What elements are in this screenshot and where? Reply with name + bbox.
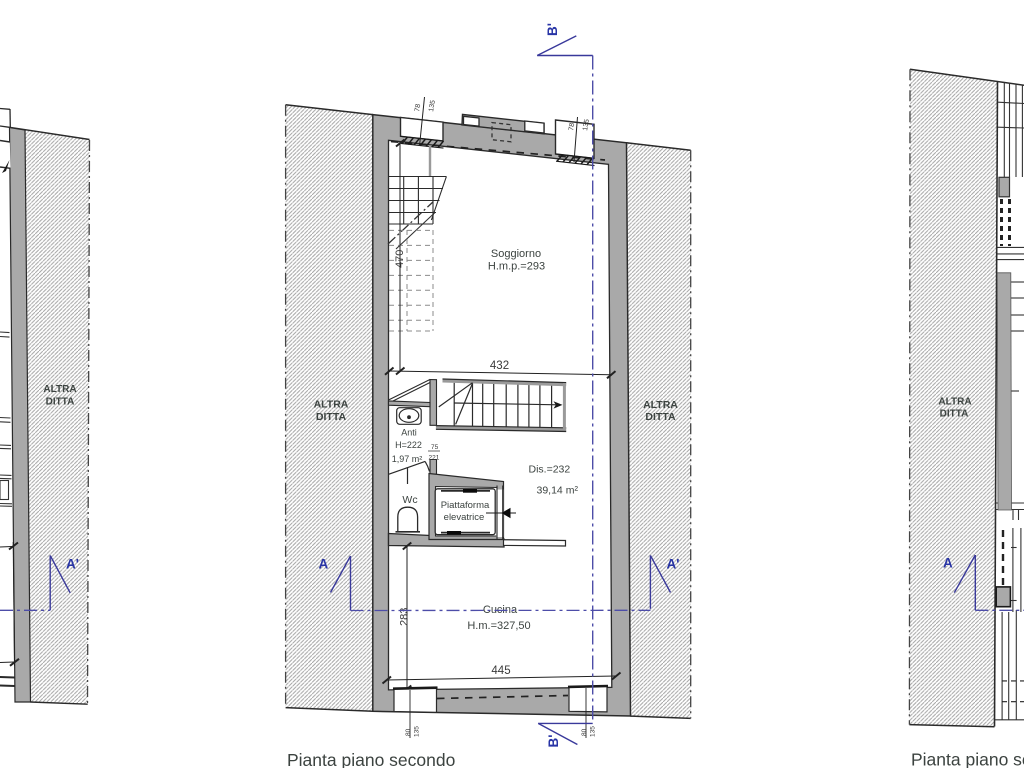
- svg-text:elevatrice: elevatrice: [444, 512, 485, 523]
- svg-text:DITTA: DITTA: [645, 411, 676, 423]
- svg-text:135: 135: [413, 726, 420, 737]
- svg-text:Dis.=232: Dis.=232: [529, 464, 571, 476]
- svg-text:39,14 m²: 39,14 m²: [537, 485, 579, 497]
- svg-text:H.m.p.=293: H.m.p.=293: [488, 261, 545, 273]
- svg-text:DITTA: DITTA: [316, 411, 347, 423]
- svg-text:Wc: Wc: [402, 494, 417, 506]
- svg-text:80: 80: [405, 728, 412, 736]
- svg-text:A': A': [667, 557, 680, 572]
- svg-text:A': A': [66, 557, 79, 572]
- svg-text:Anti: Anti: [401, 428, 417, 438]
- svg-text:A: A: [319, 557, 329, 572]
- svg-text:470: 470: [394, 250, 406, 268]
- svg-text:DITTA: DITTA: [46, 397, 75, 408]
- svg-text:ALTRA: ALTRA: [643, 399, 678, 411]
- svg-text:ALTRA: ALTRA: [938, 397, 971, 408]
- svg-text:221: 221: [429, 455, 440, 462]
- svg-text:Soggiorno: Soggiorno: [491, 248, 541, 260]
- svg-text:432: 432: [490, 360, 509, 372]
- svg-text:Pianta piano se: Pianta piano se: [911, 750, 1024, 768]
- svg-text:80: 80: [581, 728, 588, 736]
- svg-text:ALTRA: ALTRA: [43, 384, 76, 395]
- svg-text:75: 75: [431, 444, 439, 451]
- svg-text:ALTRA: ALTRA: [314, 399, 349, 411]
- svg-text:A: A: [943, 556, 953, 571]
- svg-text:135: 135: [589, 726, 596, 737]
- svg-text:Pianta piano secondo: Pianta piano secondo: [287, 750, 455, 768]
- svg-text:Piattaforma: Piattaforma: [441, 500, 490, 511]
- svg-text:H.m.=327,50: H.m.=327,50: [467, 620, 530, 632]
- svg-text:B': B': [545, 23, 560, 36]
- svg-text:H=222: H=222: [395, 440, 422, 450]
- svg-text:1,97 m²: 1,97 m²: [392, 454, 423, 464]
- svg-text:B': B': [546, 735, 561, 748]
- svg-text:78: 78: [414, 103, 422, 112]
- svg-text:DITTA: DITTA: [940, 409, 969, 420]
- svg-text:78: 78: [568, 122, 576, 131]
- svg-text:445: 445: [491, 665, 510, 677]
